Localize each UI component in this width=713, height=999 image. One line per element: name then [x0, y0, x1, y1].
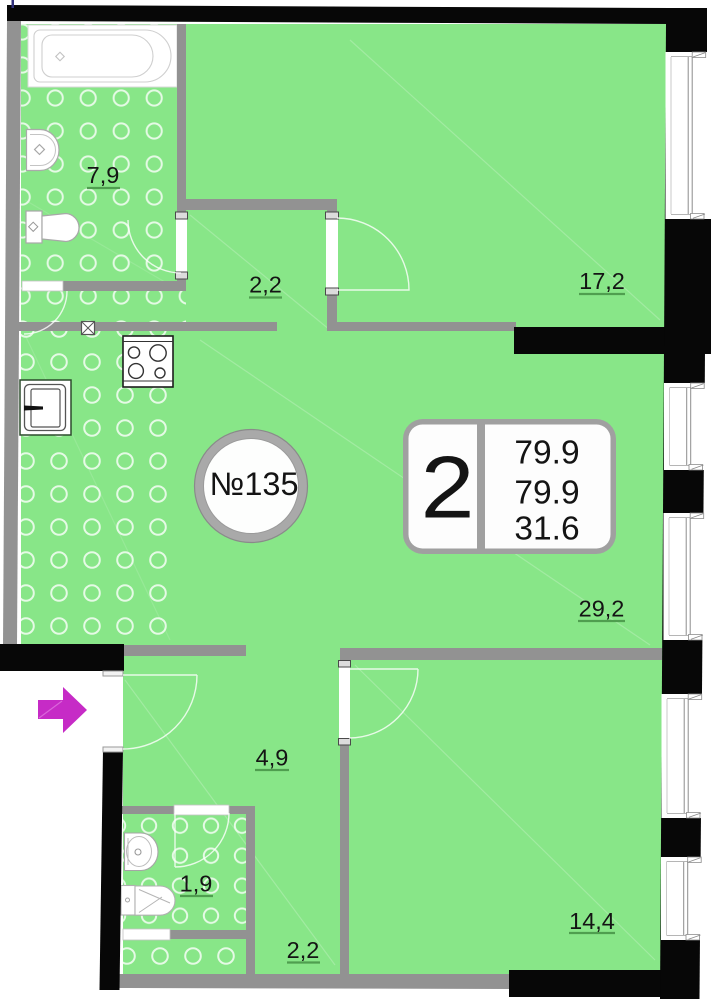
svg-text:№135: №135: [209, 466, 298, 502]
svg-text:4,9: 4,9: [256, 745, 289, 771]
svg-text:29,2: 29,2: [579, 596, 625, 622]
svg-text:7,9: 7,9: [87, 162, 120, 188]
svg-text:79.9: 79.9: [514, 435, 579, 472]
svg-text:14,4: 14,4: [569, 908, 615, 934]
svg-text:79.9: 79.9: [514, 474, 579, 511]
svg-text:17,2: 17,2: [579, 268, 625, 294]
svg-text:31.6: 31.6: [514, 510, 579, 547]
svg-text:2,2: 2,2: [249, 272, 282, 298]
svg-text:2,2: 2,2: [287, 937, 320, 963]
svg-text:1,9: 1,9: [180, 871, 213, 897]
svg-text:2: 2: [421, 438, 475, 537]
